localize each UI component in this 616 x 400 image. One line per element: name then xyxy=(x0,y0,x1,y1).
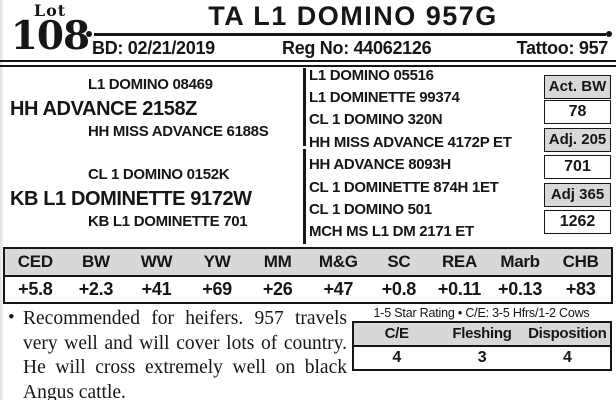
adj-365-label: Adj 365 xyxy=(544,183,611,207)
note-line: very well and will cover lots of country… xyxy=(23,332,347,357)
rating-value: 4 xyxy=(354,347,439,369)
page-title: TA L1 DOMINO 957G xyxy=(100,1,606,32)
epd-header: CHB xyxy=(550,249,611,275)
birth-date: BD: 02/21/2019 xyxy=(92,38,215,59)
dam-name: KB L1 DOMINETTE 9172W xyxy=(10,188,252,211)
note-line: Angus cattle. xyxy=(23,381,347,400)
epd-header: SC xyxy=(369,249,430,275)
tattoo-number: Tattoo: 957 xyxy=(517,38,608,59)
epd-value: +69 xyxy=(187,277,248,302)
adj-205-label: Adj. 205 xyxy=(544,128,611,152)
extended-pedigree: L1 DOMINO 05516 L1 DOMINETTE 99374 CL 1 … xyxy=(309,64,537,243)
rating-header: Fleshing xyxy=(439,323,524,345)
epd-value: +83 xyxy=(550,277,611,302)
epd-value: +0.8 xyxy=(369,277,430,302)
epd-header: M&G xyxy=(308,249,369,275)
pedigree-entry: CL 1 DOMINETTE 874H 1ET xyxy=(309,176,537,198)
rating-header-row: C/E Fleshing Disposition xyxy=(354,323,610,347)
epd-value: +41 xyxy=(126,277,187,302)
epd-header: BW xyxy=(66,249,127,275)
pedigree-entry: L1 DOMINETTE 99374 xyxy=(309,86,537,108)
lot-block: Lot 108 xyxy=(8,1,92,56)
pedigree-entry: CL 1 DOMINO 320N xyxy=(309,109,537,131)
epd-value: +0.13 xyxy=(490,277,551,302)
pedigree-entry: CL 1 DOMINO 501 xyxy=(309,198,537,220)
epd-value: +2.3 xyxy=(66,277,127,302)
rule-end-dot-icon xyxy=(606,31,612,37)
note-line: He will cross extremely well on black xyxy=(23,356,347,381)
rating-caption: 1-5 Star Rating • C/E: 3-5 Hfrs/1-2 Cows xyxy=(350,306,613,320)
dam-sire: CL 1 DOMINO 0152K xyxy=(88,166,229,183)
title-rule xyxy=(94,33,606,36)
epd-header: CED xyxy=(5,249,66,275)
rating-value-row: 4 3 4 xyxy=(354,347,610,369)
epd-table: CED BW WW YW MM M&G SC REA Marb CHB +5.8… xyxy=(3,247,613,304)
note-line: Recommended for heifers. 957 travels xyxy=(23,307,347,332)
pedigree-divider-bottom xyxy=(303,149,306,244)
sire-dam: HH MISS ADVANCE 6188S xyxy=(88,123,268,140)
epd-header: Marb xyxy=(490,249,551,275)
pedigree-entry: L1 DOMINO 05516 xyxy=(309,64,537,86)
actual-bw-value: 78 xyxy=(544,100,611,124)
pedigree-entry: HH MISS ADVANCE 4172P ET xyxy=(309,131,537,153)
sale-notes: • Recommended for heifers. 957 travels v… xyxy=(6,307,347,400)
rating-header: C/E xyxy=(354,323,439,345)
bullet-icon: • xyxy=(8,306,15,331)
pedigree-entry: HH ADVANCE 8093H xyxy=(309,154,537,176)
rating-value: 3 xyxy=(439,347,524,369)
actual-bw-label: Act. BW xyxy=(544,75,611,99)
pedigree-divider-top xyxy=(303,68,306,146)
epd-value-row: +5.8 +2.3 +41 +69 +26 +47 +0.8 +0.11 +0.… xyxy=(5,277,611,302)
epd-header: REA xyxy=(429,249,490,275)
lot-number: 108 xyxy=(8,17,92,56)
epd-value: +0.11 xyxy=(429,277,490,302)
sire-sire: L1 DOMINO 08469 xyxy=(88,76,213,93)
adj-205-value: 701 xyxy=(544,155,611,179)
dam-dam: KB L1 DOMINETTE 701 xyxy=(88,213,247,230)
epd-value: +5.8 xyxy=(5,277,66,302)
catalog-page: Lot 108 TA L1 DOMINO 957G BD: 02/21/2019… xyxy=(0,0,616,400)
epd-header: MM xyxy=(247,249,308,275)
rating-value: 4 xyxy=(525,347,610,369)
adj-365-value: 1262 xyxy=(544,210,611,234)
epd-header: YW xyxy=(187,249,248,275)
epd-header-row: CED BW WW YW MM M&G SC REA Marb CHB xyxy=(5,249,611,277)
rating-table: C/E Fleshing Disposition 4 3 4 xyxy=(352,321,612,371)
epd-value: +47 xyxy=(308,277,369,302)
registration-number: Reg No: 44062126 xyxy=(282,38,431,59)
id-row: BD: 02/21/2019 Reg No: 44062126 Tattoo: … xyxy=(92,38,608,59)
pedigree-entry: MCH MS L1 DM 2171 ET xyxy=(309,221,537,243)
epd-value: +26 xyxy=(247,277,308,302)
rating-header: Disposition xyxy=(525,323,610,345)
sire-name: HH ADVANCE 2158Z xyxy=(10,98,197,121)
epd-header: WW xyxy=(126,249,187,275)
